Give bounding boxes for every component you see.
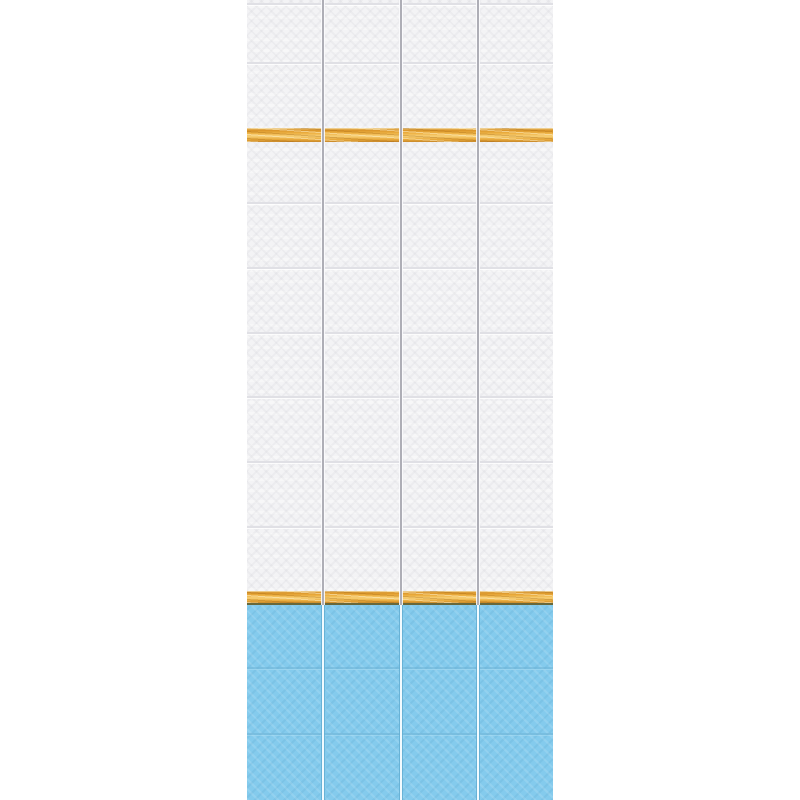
panel-joint (476, 605, 480, 800)
panel-joint (477, 0, 479, 605)
product-photo-canvas (0, 0, 800, 800)
panel-joint (322, 0, 324, 605)
pvc-panel-strip (247, 0, 553, 800)
panel-joint (399, 605, 403, 800)
panel-joint (321, 605, 325, 800)
panel-joint (400, 0, 402, 605)
